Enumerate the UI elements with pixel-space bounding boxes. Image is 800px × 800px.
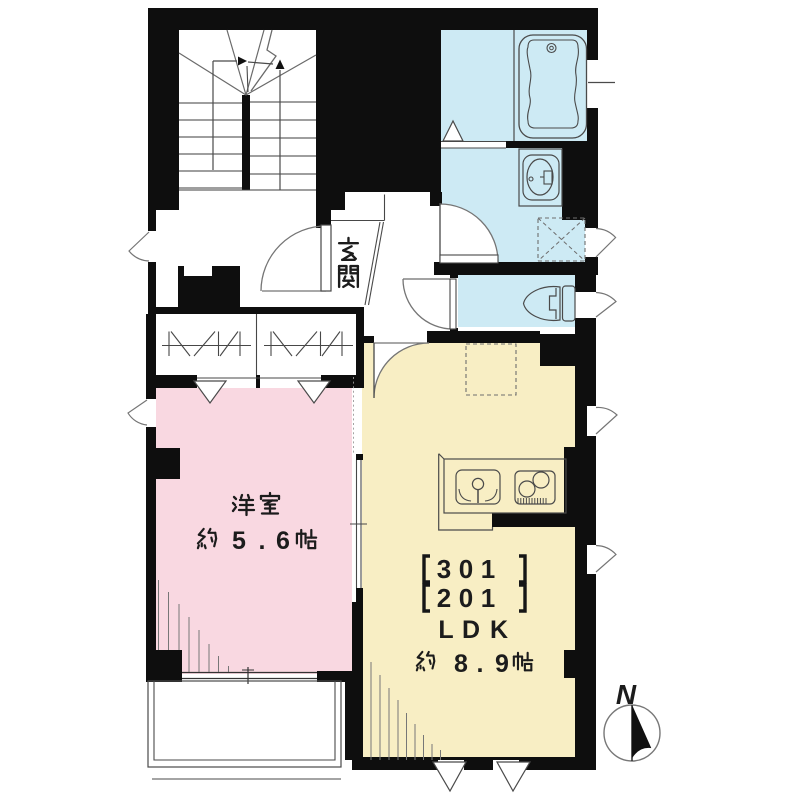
svg-text:D: D (462, 616, 480, 644)
svg-text:9: 9 (495, 650, 509, 678)
svg-text:5: 5 (232, 527, 246, 555)
svg-text:L: L (438, 616, 453, 644)
svg-text:2: 2 (437, 583, 451, 613)
svg-text:8: 8 (454, 650, 468, 678)
svg-text:1: 1 (481, 583, 495, 613)
svg-text:.: . (477, 650, 484, 678)
svg-text:K: K (490, 616, 508, 644)
svg-text:0: 0 (459, 583, 473, 613)
svg-text:.: . (259, 527, 266, 555)
svg-text:3: 3 (437, 554, 451, 584)
svg-text:N: N (616, 679, 637, 710)
svg-text:1: 1 (481, 554, 495, 584)
svg-text:0: 0 (459, 554, 473, 584)
svg-text:6: 6 (276, 527, 290, 555)
